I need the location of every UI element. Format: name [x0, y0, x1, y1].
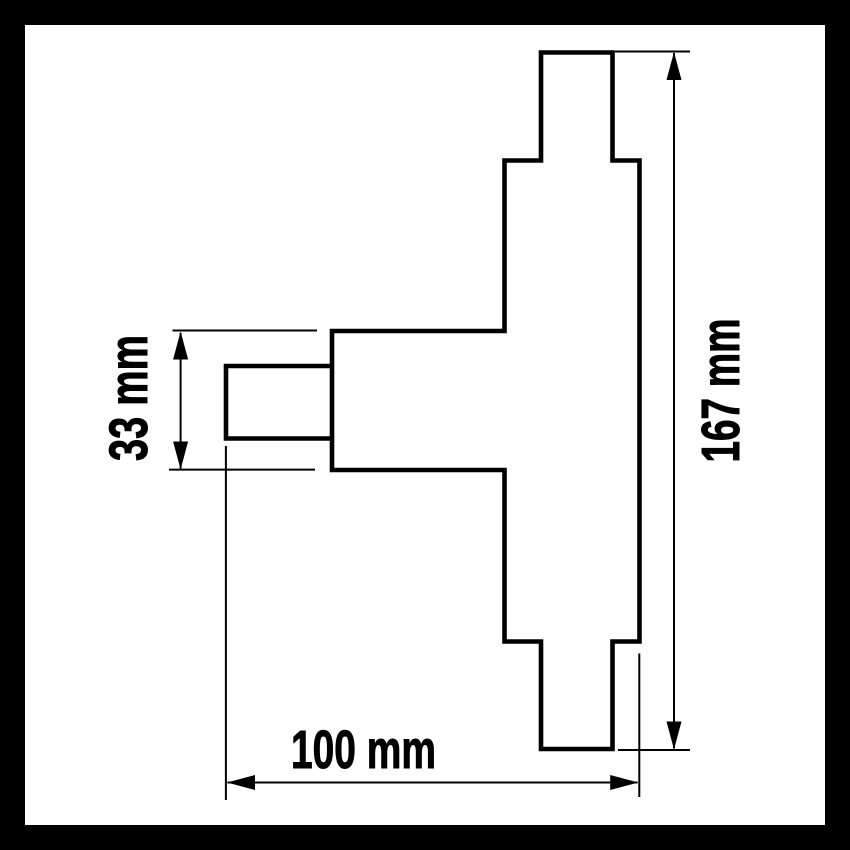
svg-text:167 mm: 167 mm: [691, 319, 751, 463]
svg-text:33 mm: 33 mm: [99, 335, 159, 461]
svg-text:100 mm: 100 mm: [291, 720, 436, 780]
